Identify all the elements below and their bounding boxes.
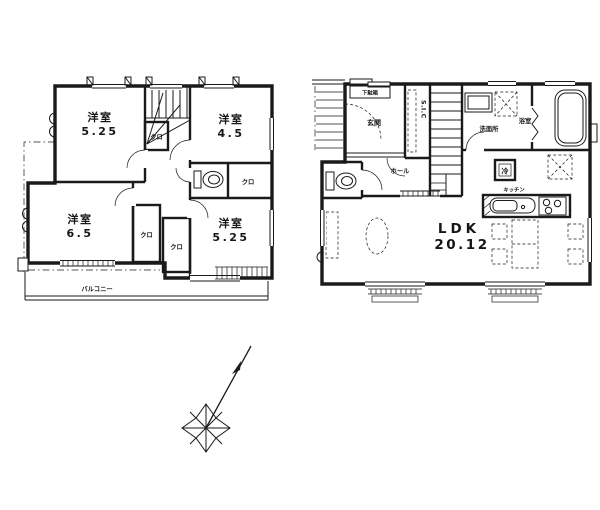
closet-c-2f: クロ <box>133 205 160 262</box>
washroom-label: 洗面所 <box>480 124 500 133</box>
staircase-1f <box>430 93 462 196</box>
refrigerator-box: 冷 <box>495 160 515 180</box>
tv-board <box>326 212 338 258</box>
kitchen-label: キッチン <box>503 187 525 194</box>
toilet-1f-icon <box>326 172 356 190</box>
laundry-space-box <box>548 155 572 179</box>
shoe-cabinet-label: 下駄箱 <box>362 89 379 97</box>
dining-set <box>492 220 583 268</box>
toilet-2f-icon <box>194 171 223 188</box>
svg-text:洋室: 洋室 <box>219 112 244 126</box>
closet-a-label: クロ <box>150 132 163 141</box>
svg-text:6.5: 6.5 <box>67 227 94 240</box>
shoe-closet-sic: S.I.C <box>408 90 427 152</box>
balcony-label: バルコニー <box>81 285 112 293</box>
washing-machine-box <box>495 92 517 116</box>
compass-north-arrow <box>182 346 251 452</box>
svg-text:洋室: 洋室 <box>88 110 113 124</box>
floorplan-canvas: クロ クロ クロ クロ <box>0 0 600 510</box>
floor-plan-2f: クロ クロ クロ クロ <box>18 77 276 300</box>
closet-b-label: クロ <box>242 177 255 186</box>
entrance-label: 玄関 <box>367 118 381 127</box>
washbasin <box>465 93 492 112</box>
ldk-label: LDK 20.12 <box>434 221 489 253</box>
vents-2f-left <box>18 113 55 271</box>
washroom-door-swing <box>466 132 484 150</box>
bedroom-a-label: 洋室 5.25 <box>81 110 118 138</box>
svg-text:4.5: 4.5 <box>218 127 245 140</box>
floor-plan-1f: 下駄箱 S.I.C <box>312 79 597 302</box>
bedroom-c-label: 洋室 6.5 <box>67 212 94 240</box>
balcony-2f: バルコニー <box>25 267 268 300</box>
entrance-porch <box>312 80 345 150</box>
refrigerator-label: 冷 <box>502 167 509 176</box>
entrance-step <box>345 153 405 157</box>
svg-text:5.25: 5.25 <box>212 231 249 244</box>
closet-a-2f: クロ <box>145 122 168 150</box>
interior-walls-1f <box>322 84 590 198</box>
closet-b-2f: クロ <box>242 177 255 186</box>
closet-d-label: クロ <box>170 242 183 251</box>
bedroom-b-label: 洋室 4.5 <box>218 112 245 140</box>
svg-text:20.12: 20.12 <box>434 237 489 253</box>
windows-2f-top <box>87 77 239 90</box>
floorplan-drawing: クロ クロ クロ クロ <box>0 0 600 510</box>
living-table-oval <box>366 218 388 254</box>
bedroom-d-label: 洋室 5.25 <box>212 216 249 244</box>
svg-text:洋室: 洋室 <box>219 216 244 230</box>
shoe-cabinet: 下駄箱 <box>350 86 390 98</box>
closet-c-label: クロ <box>140 230 153 239</box>
bath-folding-door <box>532 108 538 140</box>
exterior-walls-1f <box>322 84 590 284</box>
svg-text:LDK: LDK <box>438 221 480 237</box>
kitchen-counter: キッチン <box>483 187 570 218</box>
toilet-door-swing <box>362 170 382 190</box>
svg-text:洋室: 洋室 <box>68 212 93 226</box>
bathroom-label: 浴室 <box>519 116 532 125</box>
bathtub <box>555 90 586 146</box>
sic-label: S.I.C <box>420 100 427 119</box>
closet-d-2f: クロ <box>163 218 190 272</box>
hall-label: ホール <box>391 167 411 175</box>
svg-text:5.25: 5.25 <box>81 125 118 138</box>
